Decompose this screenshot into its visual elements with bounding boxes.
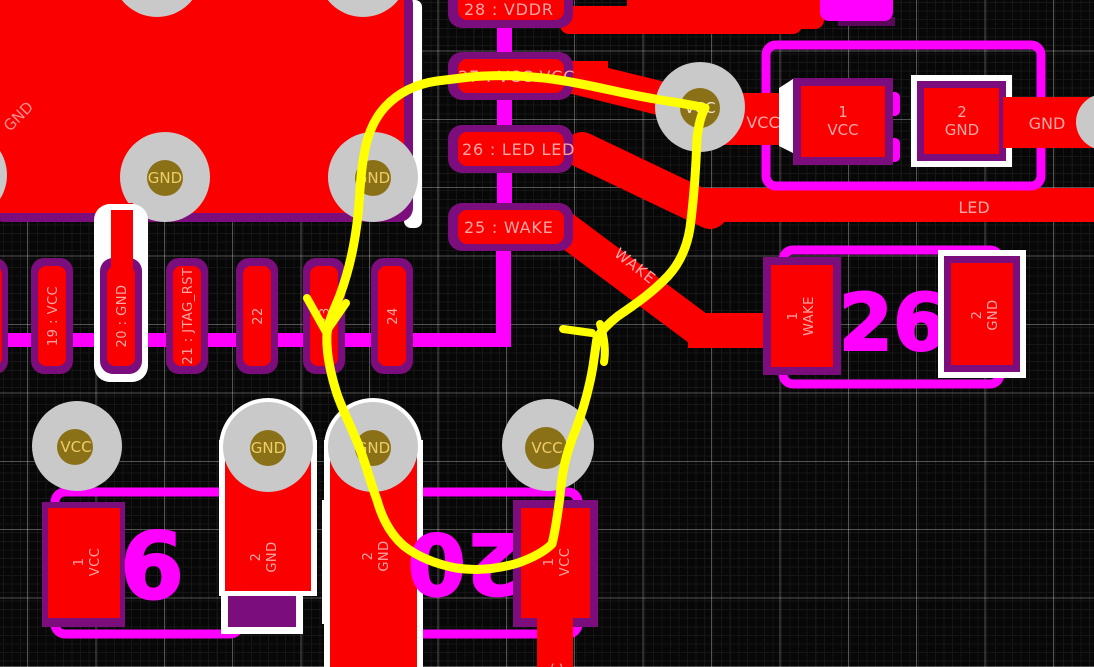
via-gnd-b1-label: GND	[251, 439, 285, 457]
trace-vcc-bottom-label: VCC	[550, 663, 566, 667]
svg-text:GND: GND	[377, 540, 392, 571]
trace-vcc-label: VCC	[746, 113, 779, 132]
pcb-layout: GND GND GND 19 : VCC 20 : GND 21 : JTAG_…	[0, 0, 1094, 667]
trace-wake-band[interactable]	[688, 313, 773, 348]
pad-partial-copper[interactable]	[0, 266, 2, 366]
pad-21-label: 21 : JTAG_RST	[181, 268, 196, 365]
svg-text:VCC: VCC	[88, 548, 103, 577]
via-gnd-1-label: GND	[148, 169, 182, 187]
trace-led-label: LED	[958, 198, 989, 217]
trace-vertical[interactable]	[496, 245, 511, 345]
svg-text:GND: GND	[265, 541, 280, 572]
wake-designator: 26	[839, 279, 948, 369]
svg-text:2: 2	[361, 552, 376, 561]
led-pad-1-pin: 1	[838, 103, 848, 121]
led-pad-2-pin: 2	[957, 103, 967, 121]
pad-20-stub[interactable]	[111, 210, 133, 270]
route-tick	[563, 329, 592, 333]
svg-text:WAKE: WAKE	[802, 296, 817, 336]
trace-vddr-top[interactable]	[627, 0, 824, 29]
svg-text:1: 1	[786, 312, 801, 321]
route-stub	[600, 324, 605, 362]
trace-vcc-bottom[interactable]	[537, 616, 573, 667]
svg-text:VCC: VCC	[558, 548, 573, 577]
trace-top-magenta[interactable]	[820, 0, 893, 21]
trace-led-band[interactable]	[688, 188, 1094, 222]
pin-row[interactable]: 19 : VCC 20 : GND 21 : JTAG_RST 22 23 24	[0, 204, 413, 382]
header-stub-3[interactable]	[497, 171, 512, 205]
trace-wake-diag[interactable]	[562, 227, 700, 330]
svg-text:1: 1	[542, 558, 557, 567]
pad-19-label: 19 : VCC	[46, 286, 61, 346]
pad-24-label: 24	[386, 307, 401, 325]
bottom-components[interactable]: 2 GND 2 GND VCC GND GND VCC 1 VCC 6 20	[32, 398, 598, 667]
header-stub-2[interactable]	[497, 98, 512, 127]
svg-text:2: 2	[970, 311, 985, 320]
cap-left-designator: 6	[120, 513, 184, 620]
pad-25-label: 25 : WAKE	[464, 218, 554, 237]
svg-text:GND: GND	[986, 299, 1001, 330]
led-pad-1-net: VCC	[827, 121, 858, 139]
pad-20-label: 20 : GND	[115, 285, 130, 348]
pad-26-label: 26 : LED LED	[462, 140, 575, 159]
led-pad1-mask	[779, 79, 793, 153]
trace-gnd-label: GND	[1029, 114, 1066, 133]
svg-text:1: 1	[72, 558, 87, 567]
led-pad-2-net: GND	[945, 121, 979, 139]
pad-28-label: 28 : VDDR	[464, 0, 554, 19]
wake-component[interactable]: 26 1 WAKE 2 GND	[763, 250, 1026, 384]
header-stub-1[interactable]	[497, 26, 512, 54]
pad-22-label: 22	[251, 307, 266, 325]
via-vcc-bc-label: VCC	[531, 439, 562, 457]
via-vcc-bl-label: VCC	[60, 438, 91, 456]
pcb-canvas[interactable]: GND GND GND 19 : VCC 20 : GND 21 : JTAG_…	[0, 0, 1094, 667]
svg-text:2: 2	[249, 553, 264, 562]
